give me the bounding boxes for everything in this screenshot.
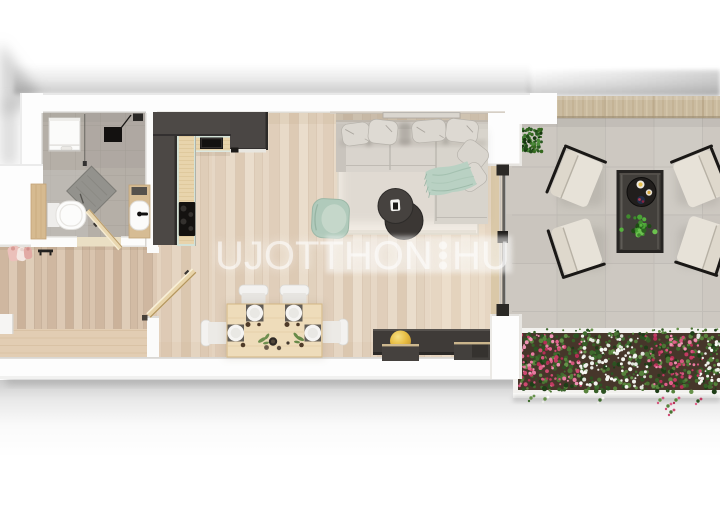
svg-text:UJOTTHON: UJOTTHON: [215, 234, 433, 278]
svg-text:HU: HU: [452, 234, 510, 278]
